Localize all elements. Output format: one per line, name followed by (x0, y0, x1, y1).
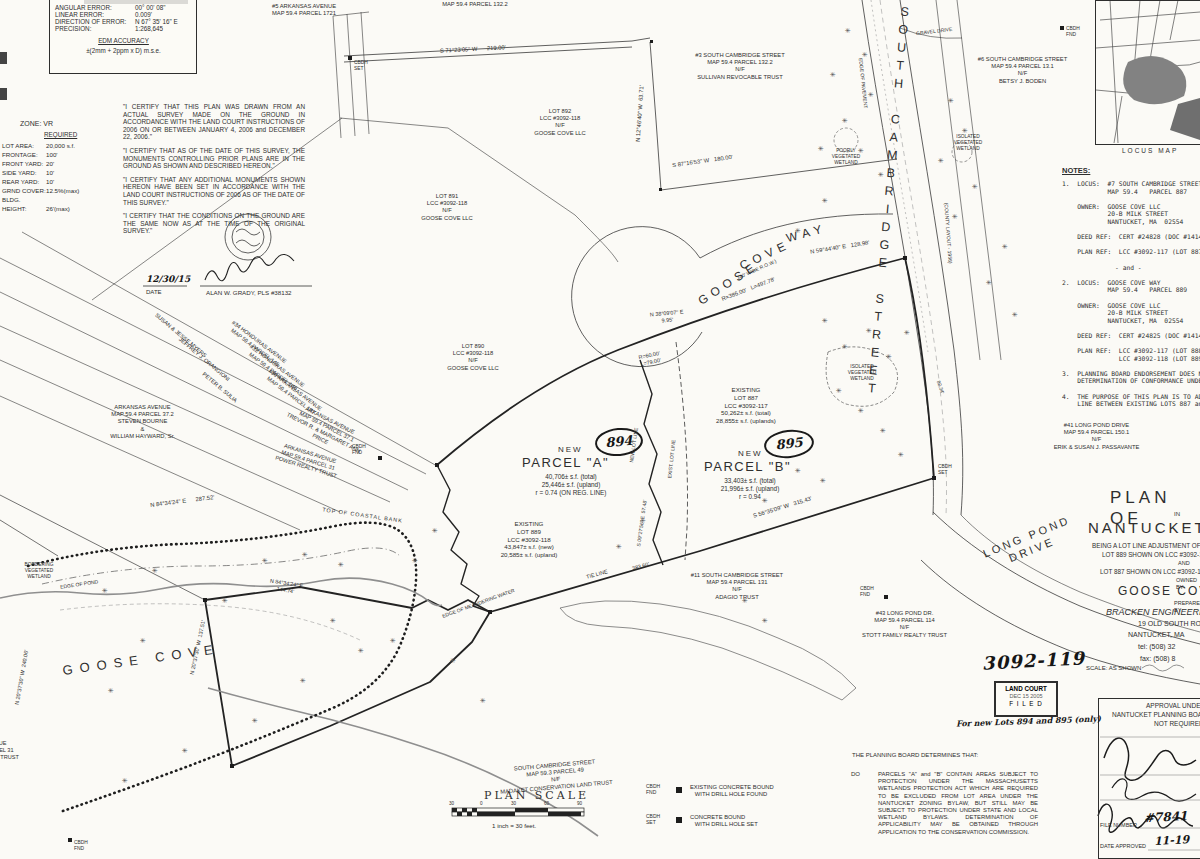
abutter-label: #11 SOUTH CAMBRIDGE STREET MAP 59.4 PARC… (682, 572, 792, 601)
shrub-icon: ✳ (862, 52, 868, 59)
existing-lot-887-label: EXISTING LOT 887 LCC #3092-117 50,262± s… (698, 386, 794, 425)
approval-line-2: NANTUCKET PLANNING BOARD (1112, 711, 1200, 719)
shrub-icon: ✳ (986, 280, 992, 287)
shrub-icon: ✳ (818, 146, 824, 153)
parcel-a-stats: 40,706± s.f. (total) 25,446± s.f. (uplan… (517, 473, 625, 497)
abutter-label: AVENUE PARCEL 31 LAND TRUST (0, 740, 54, 761)
abutter-label: LOT 890 LCC #3092-118 N/F GOOSE COVE LLC (438, 343, 508, 372)
zone-row-value: 10' (46, 178, 54, 185)
shrub-icon: ✳ (358, 648, 364, 655)
shrub-icon: ✳ (795, 228, 801, 235)
shrub-icon: ✳ (222, 598, 228, 605)
shrub-icon: ✳ (1002, 244, 1008, 251)
title-nantucket: NANTUCKET (1088, 519, 1200, 538)
monument-label: CBDH FND (860, 586, 874, 597)
parcel-b-stats: 33,403± s.f. (total) 21,996± s.f. (uplan… (700, 477, 800, 501)
title-scale-note: SCALE: AS SHOWN (1086, 665, 1141, 673)
plan-scale-note: 1 inch = 30 feet. (492, 822, 536, 830)
plan-scale-title: PLAN SCALE (484, 789, 589, 803)
zone-row-label: GRND COVER: (2, 186, 46, 195)
planning-item-text: PARCELS "A" and "B" CONTAIN AREAS SUBJEC… (878, 771, 1038, 836)
title-engineer-fax: fax: (508) 8 (1140, 655, 1175, 664)
planning-item-label: DO (851, 771, 860, 779)
approval-line-3: NOT REQUIRED (1154, 720, 1200, 728)
approval-date-value: 11-19 (1154, 833, 1190, 849)
abutter-label: #5 ARKANSAS AVENUE MAP 59.4 PARCEL 1721 (258, 3, 350, 17)
zone-title: ZONE: VR (20, 120, 53, 129)
shrub-icon: ✳ (450, 658, 456, 665)
scale-tick: 30 (511, 801, 516, 807)
abutter-label: LOT 892 LCC #3092-118 N/F GOOSE COVE LLC (525, 108, 595, 137)
land-court-stamp-date: DEC 15 2005 (996, 693, 1056, 699)
zone-row-value: 20,000 s.f. (46, 142, 75, 149)
approval-file-label: FILE NUMBER (1100, 822, 1137, 829)
shrub-icon: ✳ (858, 148, 864, 155)
shrub-icon: ✳ (962, 128, 968, 135)
surveyor-name: ALAN W. GRADY, PLS #38132 (206, 289, 292, 297)
certification-4: "I CERTIFY THAT THE CONDITIONS ON THE GR… (123, 212, 305, 235)
shrub-icon: ✳ (616, 544, 622, 551)
legend-item2-key: CBDH SET (646, 813, 660, 825)
legend-item1-text: EXISTING CONCRETE BOUND WITH DRILL HOLE … (690, 784, 774, 798)
title-subline-2: LOT 889 SHOWN ON LCC #3092-118 (1102, 551, 1200, 559)
shrub-icon: ✳ (140, 638, 146, 645)
monument-label: CBDH SET (938, 464, 952, 475)
shrub-icon: ✳ (338, 562, 344, 569)
legend-bound-found-icon (676, 787, 682, 793)
shrub-icon: ✳ (948, 98, 954, 105)
survey-accuracy-box: ANGULAR ERROR:00° 00' 08" LINEAR ERROR:0… (49, 0, 197, 74)
shrub-icon: ✳ (822, 198, 828, 205)
notes-body: 1. LOCUS: #7 SOUTH CAMBRIDGE STREET MAP … (1062, 180, 1200, 408)
certification-block: "I CERTIFY THAT THIS PLAN WAS DRAWN FROM… (123, 103, 305, 235)
zone-row-label: SIDE YARD: (2, 168, 46, 177)
shrub-icon: ✳ (836, 388, 842, 395)
monument-label: CBDH FND (74, 840, 88, 851)
angular-error-value: 00° 00' 08" (135, 4, 165, 11)
isolated-wetland-label: ISOLATED VEGETATED WETLAND (838, 364, 886, 381)
scale-tick: 30 (449, 801, 454, 807)
direction-error-value: N 67° 35' 16" E (135, 18, 178, 25)
zone-row-value: 20' (46, 160, 54, 167)
zone-row-label: BLDG. HEIGHT: (2, 195, 46, 213)
abutter-label: #3 SOUTH CAMBRIDGE STREET MAP 59.4 PARCE… (685, 52, 795, 81)
legend-item1-key: CBDH FND (646, 783, 660, 795)
land-court-stamp: LAND COURT DEC 15 2005 F I L E D (994, 681, 1058, 717)
title-engineer: BRACKEN ENGINEERING (1106, 607, 1200, 618)
shrub-icon: ✳ (122, 778, 128, 785)
title-owner-name: GOOSE COVE LLC (1118, 584, 1200, 599)
monument-label: CBDH FND (352, 444, 366, 455)
shrub-icon: ✳ (880, 428, 886, 435)
zone-row-label: LOT AREA: (2, 141, 46, 150)
locus-map-inset (1095, 0, 1200, 145)
monument-label: CBDH SET (354, 60, 368, 71)
title-engineer-tel: tel: (508) 32 (1138, 643, 1175, 652)
shrub-icon: ✳ (868, 92, 874, 99)
abutter-label: LOT 891 LCC #3092-118 N/F GOOSE COVE LLC (412, 193, 482, 222)
locus-map-caption: LOCUS MAP (1122, 147, 1178, 155)
angular-error-label: ANGULAR ERROR: (55, 4, 135, 11)
shrub-icon: ✳ (938, 158, 944, 165)
title-subline-1: BEING A LOT LINE ADJUSTMENT OF (1092, 542, 1200, 550)
zone-row-label: REAR YARD: (2, 177, 46, 186)
parcel-a-name: PARCEL "A" (522, 455, 609, 471)
certification-2: "I CERTIFY THAT AS OF THE DATE OF THIS S… (123, 147, 305, 170)
survey-date-label: DATE (146, 289, 162, 297)
shrub-icon: ✳ (1012, 312, 1018, 319)
notes-title: NOTES: (1062, 166, 1090, 175)
title-and: AND (1178, 560, 1190, 567)
shrub-icon: ✳ (102, 588, 108, 595)
shrub-icon: ✳ (762, 618, 768, 625)
scale-tick: 0 (480, 801, 483, 807)
bordering-wetland-label: BORDERING VEGETATED WETLAND (16, 562, 62, 579)
shrub-icon: ✳ (845, 28, 851, 35)
linear-error-label: LINEAR ERROR: (55, 11, 135, 18)
scale-tick: 60 (544, 801, 549, 807)
shrub-icon: ✳ (795, 468, 801, 475)
title-engineer-address-1: 19 OLD SOUTH ROAD (1138, 620, 1200, 629)
approval-date-label: DATE APPROVED (1100, 843, 1146, 850)
zone-row-value: 26'(max) (46, 205, 70, 212)
shrub-icon: ✳ (858, 408, 864, 415)
shrub-icon: ✳ (262, 558, 268, 565)
shrub-icon: ✳ (432, 528, 438, 535)
land-court-stamp-filed: F I L E D (996, 700, 1056, 707)
shrub-icon: ✳ (886, 354, 892, 361)
shrub-icon: ✳ (762, 498, 768, 505)
shrub-icon: ✳ (108, 688, 114, 695)
direction-error-label: DIRECTION OF ERROR: (55, 18, 135, 25)
title-subline-3: LOT 887 SHOWN ON LCC #3092-117 (1100, 568, 1200, 576)
shrub-icon: ✳ (640, 518, 646, 525)
land-court-stamp-line1: LAND COURT (996, 685, 1056, 692)
zone-row-value: 100' (46, 151, 58, 158)
abutter-label: ARKANSAS AVENUE MAP 59.4 PARCEL 37.2 STE… (95, 404, 190, 440)
zone-required-header: REQUIRED (44, 131, 77, 139)
zone-row-value: 10' (46, 169, 54, 176)
shrub-icon: ✳ (390, 638, 396, 645)
approval-line-1: APPROVAL UNDER THE (1146, 702, 1200, 710)
linear-error-value: 0.009' (135, 11, 152, 18)
parcel-a-new-label: NEW (558, 445, 583, 455)
scale-tick: 90 (577, 801, 582, 807)
shrub-icon: ✳ (904, 330, 910, 337)
zone-table: LOT AREA:20,000 s.f. FRONTAGE:100' FRONT… (2, 141, 79, 213)
shrub-icon: ✳ (898, 452, 904, 459)
shrub-icon: ✳ (878, 172, 884, 179)
shrub-icon: ✳ (152, 568, 158, 575)
planning-determination-intro: THE PLANNING BOARD DETERMINES THAT: (852, 752, 978, 760)
shrub-icon: ✳ (742, 598, 748, 605)
shrub-icon: ✳ (952, 214, 958, 221)
shrub-icon: ✳ (972, 184, 978, 191)
isolated-wetland-street-label: ISOLATED VEGETATED WETLAND (944, 134, 992, 151)
existing-lot-889-label: EXISTING LOT 889 LCC #3092-118 43,847± s… (483, 520, 575, 559)
precision-label: PRECISION: (55, 25, 135, 32)
survey-date-value: 12/30/15 (146, 274, 190, 285)
legend-bound-set-icon (676, 817, 682, 823)
zone-row-label: FRONTAGE: (2, 150, 46, 159)
shrub-icon: ✳ (842, 118, 848, 125)
certification-1: "I CERTIFY THAT THIS PLAN WAS DRAWN FROM… (123, 103, 305, 141)
shrub-icon: ✳ (822, 318, 828, 325)
abutter-label: #41 LONG POND DRIVE MAP 59.4 PARCEL 150.… (1044, 422, 1149, 451)
edm-accuracy-title: EDM ACCURACY (55, 37, 192, 44)
shrub-icon: ✳ (820, 478, 826, 485)
abutter-label: #43 LONG POND DR. MAP 59.4 PARCEL 114 N/… (852, 610, 957, 639)
monument-label: CBDH FND (1066, 26, 1080, 37)
shrub-icon: ✳ (412, 558, 418, 565)
shrub-icon: ✳ (842, 344, 848, 351)
shrub-icon: ✳ (330, 618, 336, 625)
legend-item2-text: CONCRETE BOUND WITH DRILL HOLE SET (690, 814, 758, 828)
zone-row-label: FRONT YARD: (2, 159, 46, 168)
title-in: IN (1174, 511, 1180, 519)
parcel-b-name: PARCEL "B" (704, 459, 791, 475)
certification-3: "I CERTIFY THAT ANY ADDITIONAL MONUMENTS… (123, 176, 305, 206)
shrub-icon: ✳ (480, 698, 486, 705)
survey-plan-sheet: ANGULAR ERROR:00° 00' 08" LINEAR ERROR:0… (0, 0, 1200, 859)
abutter-label: MAP 59.4 PARCEL 132.2 (430, 1, 520, 8)
shrub-icon: ✳ (302, 552, 308, 559)
shrub-icon: ✳ (252, 718, 258, 725)
shrub-icon: ✳ (830, 72, 836, 79)
precision-value: 1:268,645 (135, 25, 163, 32)
title-engineer-address-2: NANTUCKET, MA (1128, 631, 1184, 640)
shrub-icon: ✳ (182, 748, 188, 755)
edm-accuracy-value: ±(2mm + 2ppm x D) m.s.e. (55, 47, 192, 54)
approval-file-value: #7841 (1144, 809, 1188, 826)
zone-row-value: 12.5%(max) (46, 187, 79, 194)
abutter-label: #6 SOUTH CAMBRIDGE STREET MAP 59.4 PARCE… (970, 56, 1075, 85)
shrub-icon: ✳ (300, 678, 306, 685)
shrub-icon: ✳ (866, 328, 872, 335)
parcel-b-new-label: NEW (738, 449, 763, 459)
